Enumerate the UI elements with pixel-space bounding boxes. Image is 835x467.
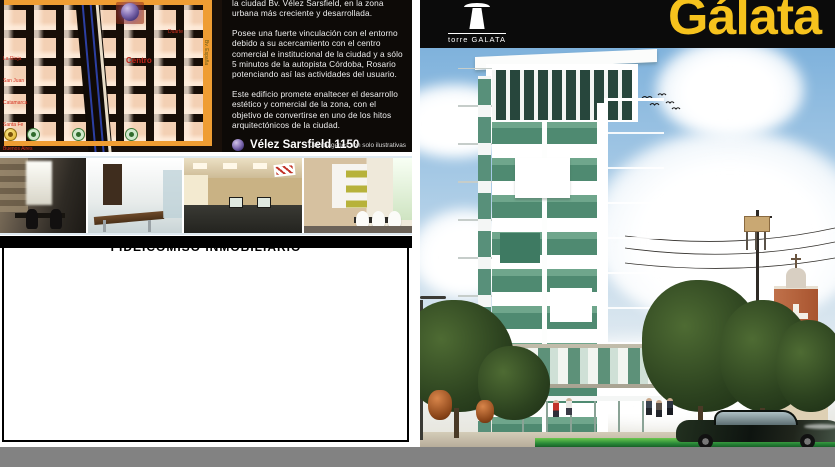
tree [776,320,835,412]
street-lamp-arm [420,296,446,299]
floor [304,226,412,233]
parked-car [676,410,835,447]
sphere-bullet-icon [232,139,244,151]
empty-content-box [2,244,409,442]
poi-glyph [76,132,81,137]
footer-bar [0,447,835,467]
disclaimer-text: Las imágenes son solo ilustrativas [309,142,406,149]
location-map: Centro Duarte La Rioja San Juan Catamarc… [0,0,222,152]
facade-panel [515,158,570,198]
glass-curtain-wall [604,98,664,447]
car-wheel [698,434,713,447]
facade-panel [500,233,540,263]
map-road-bottom [4,141,212,146]
poi-glyph [8,132,13,137]
terracotta-pot [476,400,494,423]
section-heading-bar [0,236,412,248]
desk-leg [103,220,106,232]
top-left-panel: Centro Duarte La Rioja San Juan Catamarc… [0,0,412,152]
poi-park-icon [27,128,40,141]
poi-park-icon [72,128,85,141]
tree-trunk [454,408,459,438]
brochure-page: Centro Duarte La Rioja San Juan Catamarc… [0,0,835,467]
chair [50,209,62,229]
brand-header-bar: torre GALATA Gálata [420,0,835,48]
map-road-top [4,0,210,5]
monitor [257,197,271,208]
workstations [184,205,302,234]
office-photo-warm [184,158,302,233]
interior-photo-strip [0,156,412,235]
car-cabin [714,410,798,425]
building-rendering [420,48,835,447]
tower-icon [464,3,490,29]
pedestrian [553,400,559,417]
car-wheel [800,434,815,447]
map-label-catamarca: Catamarca [3,100,27,106]
office-photo-meeting [304,158,412,233]
poi-park-icon [125,128,138,141]
pedestrian [646,398,652,415]
stone-wall [0,158,28,212]
map-label-santa-fe: Santa Fe [3,122,23,128]
pedestrian [566,398,572,415]
description-panel: la ciudad Bv. Vélez Sarsfield, en la zon… [222,0,412,152]
poi-landmark-icon [4,128,17,141]
brand-logo: torre GALATA [442,3,512,47]
map-label-la-rioja: La Rioja [3,56,21,62]
terracotta-pot [428,390,452,420]
brand-logo-label: torre GALATA [448,33,506,44]
facade-panel [550,288,592,322]
map-label-bv-espana: Bv. España [203,40,209,65]
wall-art [273,163,295,177]
tower-roof [464,3,490,7]
glass-partition [163,170,182,218]
location-sphere-icon [121,3,139,21]
map-label-duarte: Duarte [168,29,183,35]
desk-leg [148,220,151,232]
map-road-right [203,0,212,146]
map-label-san-juan: San Juan [3,78,24,84]
monitor [229,197,243,208]
description-paragraph: la ciudad Bv. Vélez Sarsfield, en la zon… [232,0,404,19]
bookshelf [103,164,122,205]
map-label-buenos-aires: Buenos Aires [3,146,32,152]
description-paragraph: Este edificio promete enaltecer el desar… [232,89,404,131]
page-title: Gálata [668,0,821,47]
chair [26,209,38,229]
car-highlight [804,424,835,429]
office-photo-dark [0,158,86,233]
description-paragraph: Posee una fuerte vinculación con el ento… [232,28,404,80]
bright-window [26,161,52,205]
office-photo-bright [88,158,182,233]
pedestrian [667,398,673,415]
poi-glyph [31,132,36,137]
pedestrian [656,400,662,417]
poi-glyph [129,132,134,137]
shelving-unit [332,164,367,208]
map-label-centro: Centro [126,58,152,64]
tower-body [467,8,487,29]
